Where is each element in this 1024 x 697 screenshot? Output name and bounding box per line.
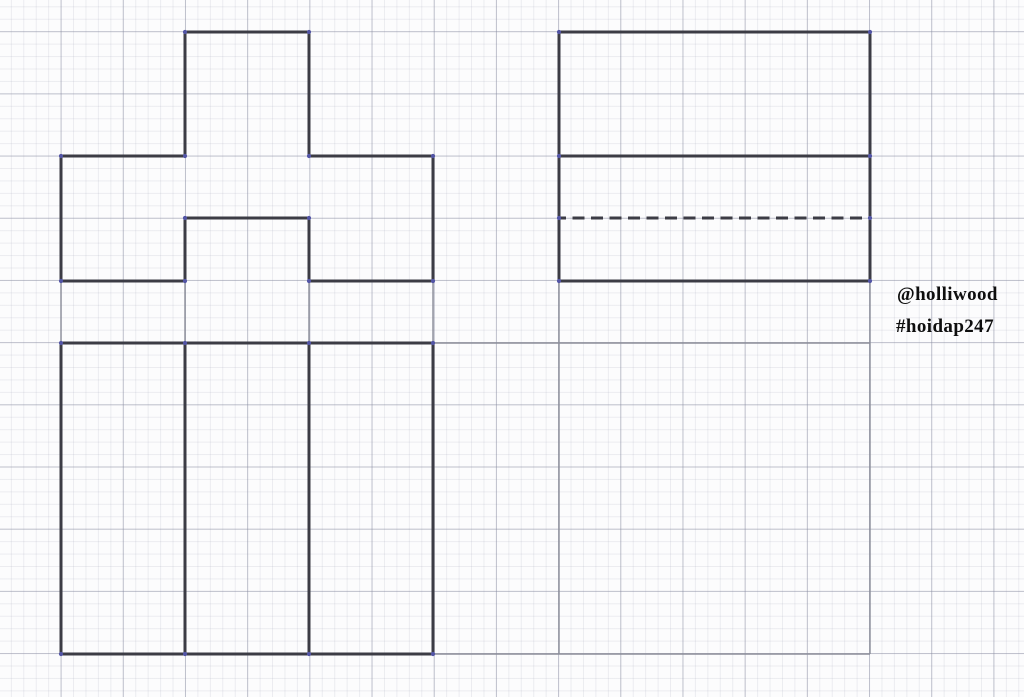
- vertex-dot: [557, 154, 561, 158]
- vertex-dot: [431, 652, 435, 656]
- vertex-dot: [868, 279, 872, 283]
- vertex-dot: [183, 154, 187, 158]
- front-view-line: [61, 32, 433, 281]
- vertex-dot: [307, 341, 311, 345]
- top-view-line: [61, 343, 433, 654]
- vertex-dot: [183, 279, 187, 283]
- vertex-dot: [183, 216, 187, 220]
- watermark-handle: @holliwood: [897, 284, 998, 306]
- vertex-dot: [557, 216, 561, 220]
- graph-paper: @holliwood #hoidap247: [0, 0, 1024, 697]
- vertex-dot: [868, 216, 872, 220]
- vertex-dot: [59, 279, 63, 283]
- vertex-dot: [431, 279, 435, 283]
- vertex-dot: [59, 154, 63, 158]
- vertex-dot: [307, 652, 311, 656]
- orthographic-drawing: [0, 0, 1024, 697]
- vertex-dot: [868, 30, 872, 34]
- vertex-dot: [307, 279, 311, 283]
- vertex-dot: [307, 30, 311, 34]
- vertex-dot: [868, 154, 872, 158]
- vertex-dot: [431, 341, 435, 345]
- watermark-hashtag: #hoidap247: [896, 316, 994, 338]
- vertex-dot: [183, 30, 187, 34]
- vertex-dot: [307, 154, 311, 158]
- vertex-dot: [183, 652, 187, 656]
- vertex-dot: [183, 341, 187, 345]
- top-view: [61, 343, 433, 654]
- side-view: [559, 32, 870, 281]
- projection-lines: [61, 281, 870, 654]
- vertex-dot: [431, 154, 435, 158]
- front-view: [61, 32, 433, 281]
- vertex-dot: [59, 341, 63, 345]
- vertex-dot: [59, 652, 63, 656]
- vertex-dot: [557, 30, 561, 34]
- vertex-dot: [557, 279, 561, 283]
- vertex-dot: [307, 216, 311, 220]
